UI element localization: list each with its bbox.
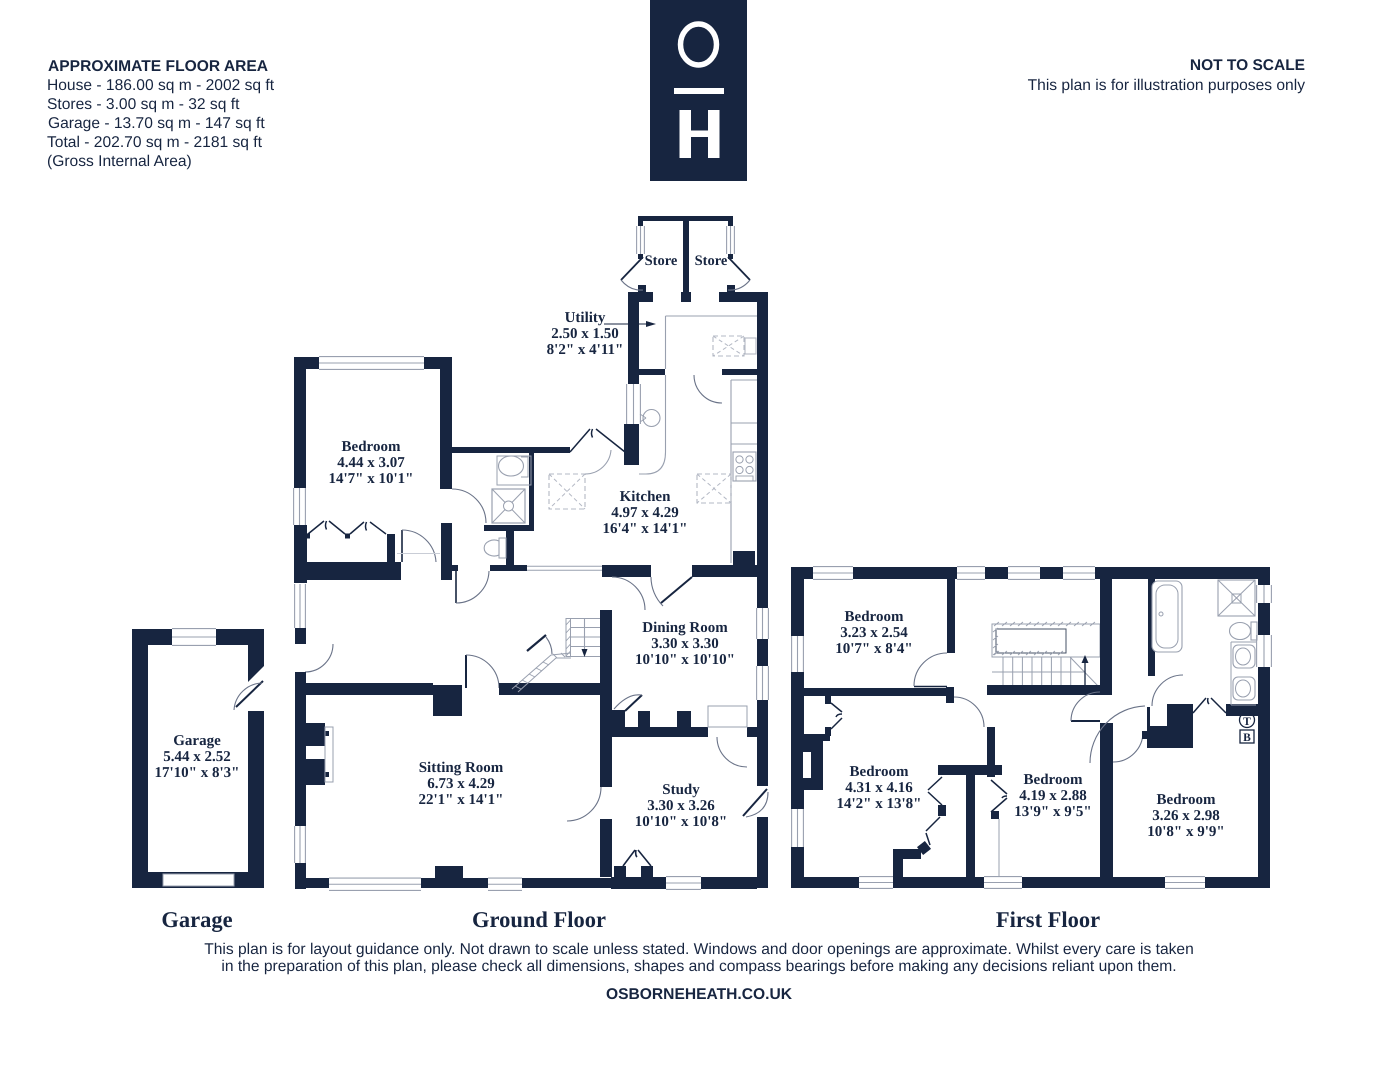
svg-text:This plan is for illustration: This plan is for illustration purposes o… [1028,77,1306,94]
svg-text:B: B [1243,732,1251,744]
svg-text:APPROXIMATE FLOOR AREA: APPROXIMATE FLOOR AREA [48,58,268,75]
svg-text:Store: Store [695,253,728,269]
svg-text:Total - 202.70 sq m - 2181 sq: Total - 202.70 sq m - 2181 sq ft [47,134,263,151]
svg-text:Bedroom3.26 x 2.9810'8" x 9'9": Bedroom3.26 x 2.9810'8" x 9'9" [1147,792,1225,840]
svg-text:Store: Store [645,253,678,269]
svg-text:House - 186.00 sq m - 2002 sq: House - 186.00 sq m - 2002 sq ft [47,77,275,94]
svg-text:Bedroom3.23 x 2.5410'7" x 8'4": Bedroom3.23 x 2.5410'7" x 8'4" [835,609,913,657]
svg-text:Stores - 3.00 sq m - 32 sq ft: Stores - 3.00 sq m - 32 sq ft [47,96,240,113]
svg-text:Bedroom4.19 x 2.8813'9" x 9'5": Bedroom4.19 x 2.8813'9" x 9'5" [1014,772,1092,820]
svg-text:OSBORNEHEATH.CO.UK: OSBORNEHEATH.CO.UK [606,986,793,1003]
svg-text:Garage: Garage [161,907,232,932]
svg-text:First Floor: First Floor [996,907,1100,932]
svg-text:T: T [1243,716,1251,728]
svg-text:in the preparation of this pla: in the preparation of this plan, please … [221,958,1176,975]
svg-text:(Gross Internal Area): (Gross Internal Area) [47,153,192,170]
svg-text:Ground Floor: Ground Floor [472,907,606,932]
svg-text:Garage - 13.70 sq m - 147 sq f: Garage - 13.70 sq m - 147 sq ft [48,115,265,132]
svg-text:This plan is for layout guidan: This plan is for layout guidance only. N… [204,941,1194,958]
svg-text:Sitting Room6.73 x 4.2922'1" x: Sitting Room6.73 x 4.2922'1" x 14'1" [419,760,504,808]
svg-text:NOT TO SCALE: NOT TO SCALE [1190,57,1305,74]
